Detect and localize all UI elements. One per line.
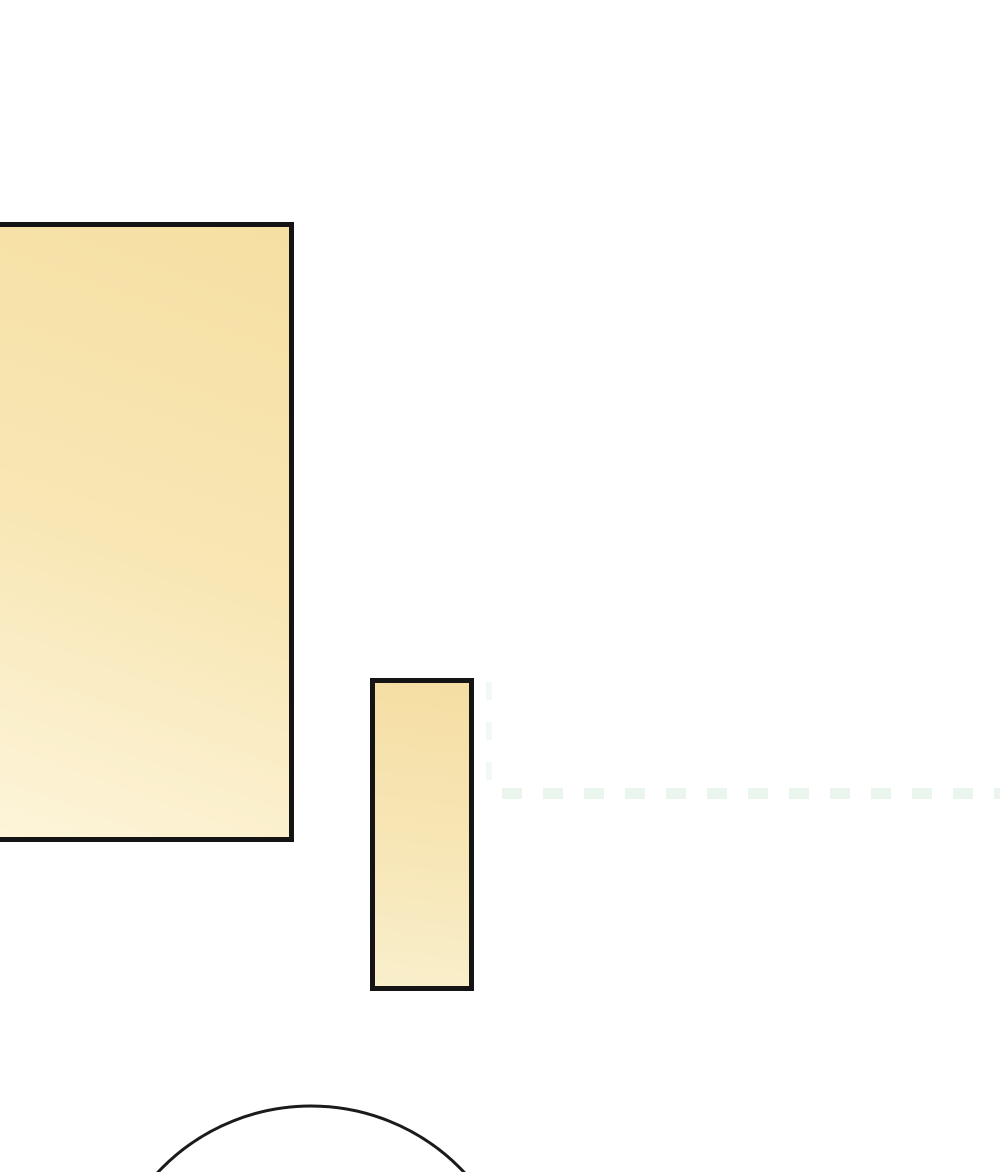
comic-page-background [0,0,1000,1172]
faint-dashed-divider-vertical [486,682,492,790]
faint-dashed-divider-horizontal [502,788,1000,799]
comic-panel-large [0,222,294,842]
circle-arc-panel [0,1095,1000,1172]
comic-panel-small [370,678,474,991]
